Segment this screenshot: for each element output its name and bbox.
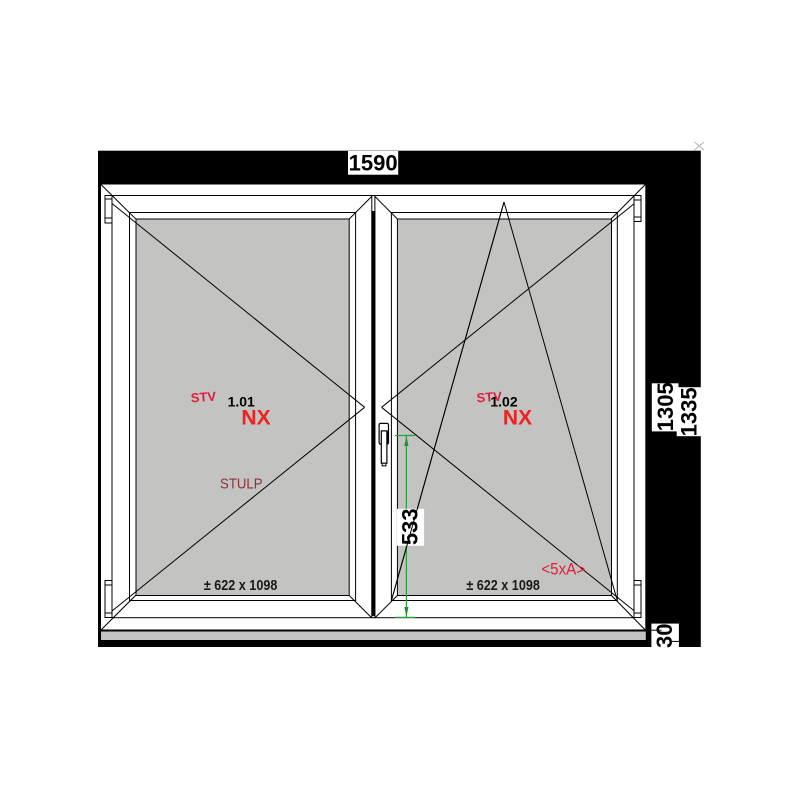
svg-text:30: 30 <box>652 623 677 647</box>
svg-text:NX: NX <box>503 406 532 429</box>
svg-text:± 622 x 1098: ± 622 x 1098 <box>466 577 540 593</box>
svg-text:533: 533 <box>398 508 423 545</box>
svg-text:STULP: STULP <box>220 475 262 492</box>
svg-text:1335: 1335 <box>677 387 702 436</box>
svg-text:STV: STV <box>190 389 217 406</box>
svg-text:1305: 1305 <box>653 382 678 431</box>
svg-text:± 622 x 1098: ± 622 x 1098 <box>204 577 278 593</box>
svg-text:NX: NX <box>241 406 270 429</box>
svg-text:<5xA>: <5xA> <box>541 559 585 578</box>
svg-text:1590: 1590 <box>349 150 398 175</box>
